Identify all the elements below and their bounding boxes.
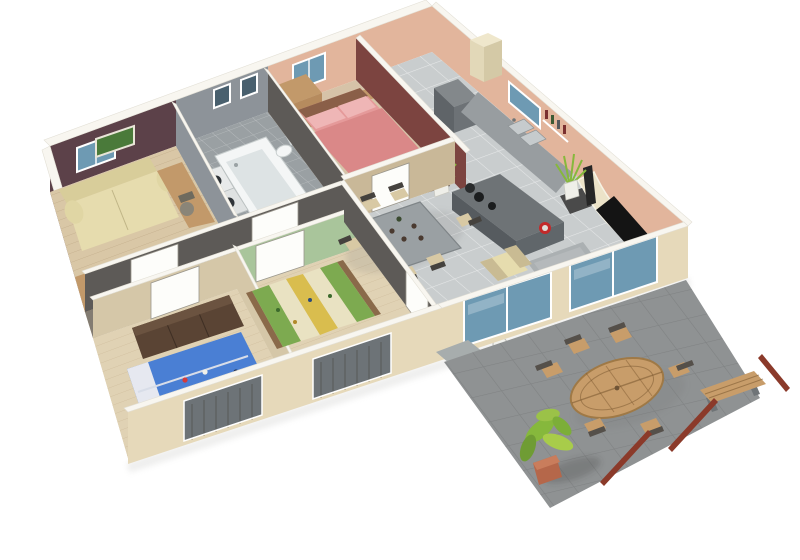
floor-plan-canvas bbox=[0, 0, 800, 560]
fridge bbox=[470, 33, 502, 82]
parasol-pole bbox=[758, 354, 790, 392]
floor-plan-svg bbox=[0, 0, 800, 560]
kettle bbox=[465, 183, 475, 193]
